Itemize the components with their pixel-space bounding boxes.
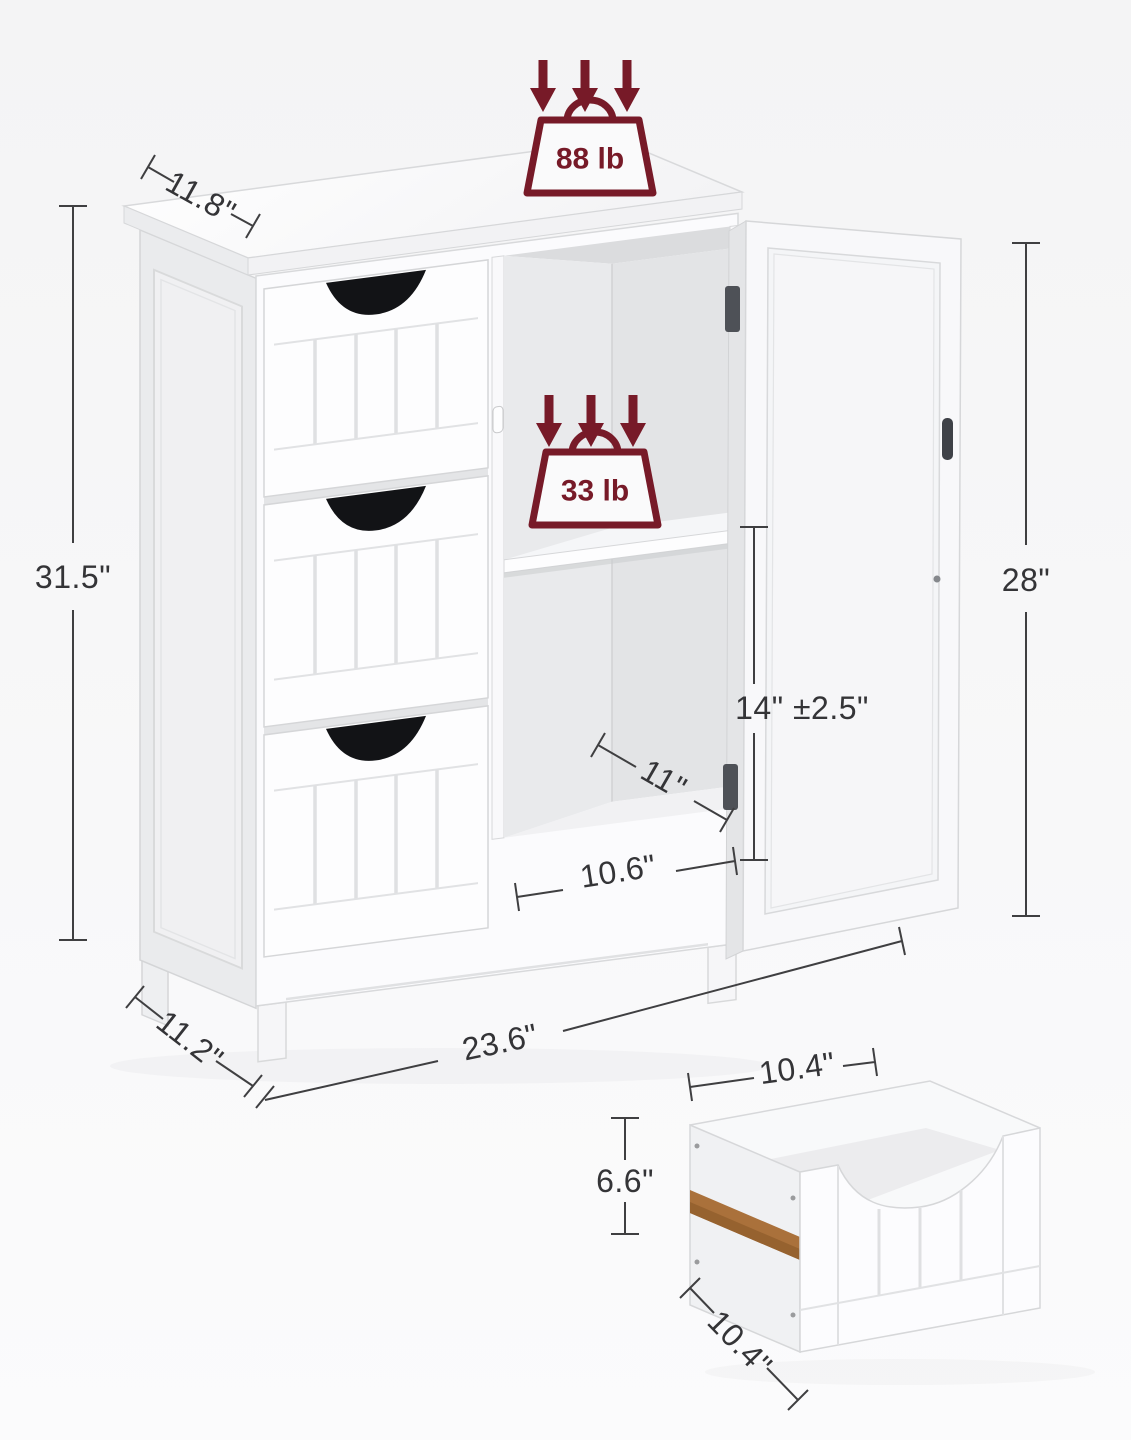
dim-label: 28"	[1002, 562, 1050, 598]
front-left-leg	[258, 1002, 286, 1062]
screw-dot	[695, 1144, 700, 1149]
screw-dot	[791, 1196, 796, 1201]
dim-label: 14" ±2.5"	[735, 690, 869, 726]
screw-dot	[695, 1260, 700, 1265]
dimension-diagram-canvas: 88 lb 33 lb 11.8" 31.5" 28" 14" ±2.5" 11…	[0, 0, 1131, 1440]
door-screw	[934, 576, 941, 583]
load-capacity-top-label: 88 lb	[556, 143, 624, 176]
cabinet-side-panel	[140, 230, 256, 1062]
door-recessed-panel-inner-line	[771, 254, 934, 908]
load-capacity-shelf-label: 33 lb	[561, 475, 629, 508]
drawer-3	[264, 706, 488, 957]
door-catch-plate-divider	[493, 406, 503, 433]
door-magnetic-catch	[942, 418, 953, 460]
side-recessed-panel	[154, 270, 242, 969]
door-hinge-bottom	[723, 764, 738, 810]
screw-dot	[791, 1313, 796, 1318]
dim-label: 31.5"	[35, 559, 111, 595]
door-hinge-top	[725, 286, 740, 332]
drawer-1	[264, 260, 488, 497]
center-divider-edge	[492, 256, 504, 840]
load-arrows-icon	[530, 60, 640, 112]
open-compartment	[504, 226, 730, 837]
product-image: 88 lb 33 lb 11.8" 31.5" 28" 14" ±2.5" 11…	[0, 0, 1131, 1440]
drawer-detail	[690, 1081, 1040, 1352]
cabinet	[124, 140, 961, 1062]
cabinet-door-open	[723, 221, 961, 959]
cabinet-front	[256, 213, 738, 1062]
drawer-2	[264, 476, 488, 727]
dim-label: 6.6"	[596, 1163, 654, 1199]
load-arrows-icon	[536, 395, 646, 447]
